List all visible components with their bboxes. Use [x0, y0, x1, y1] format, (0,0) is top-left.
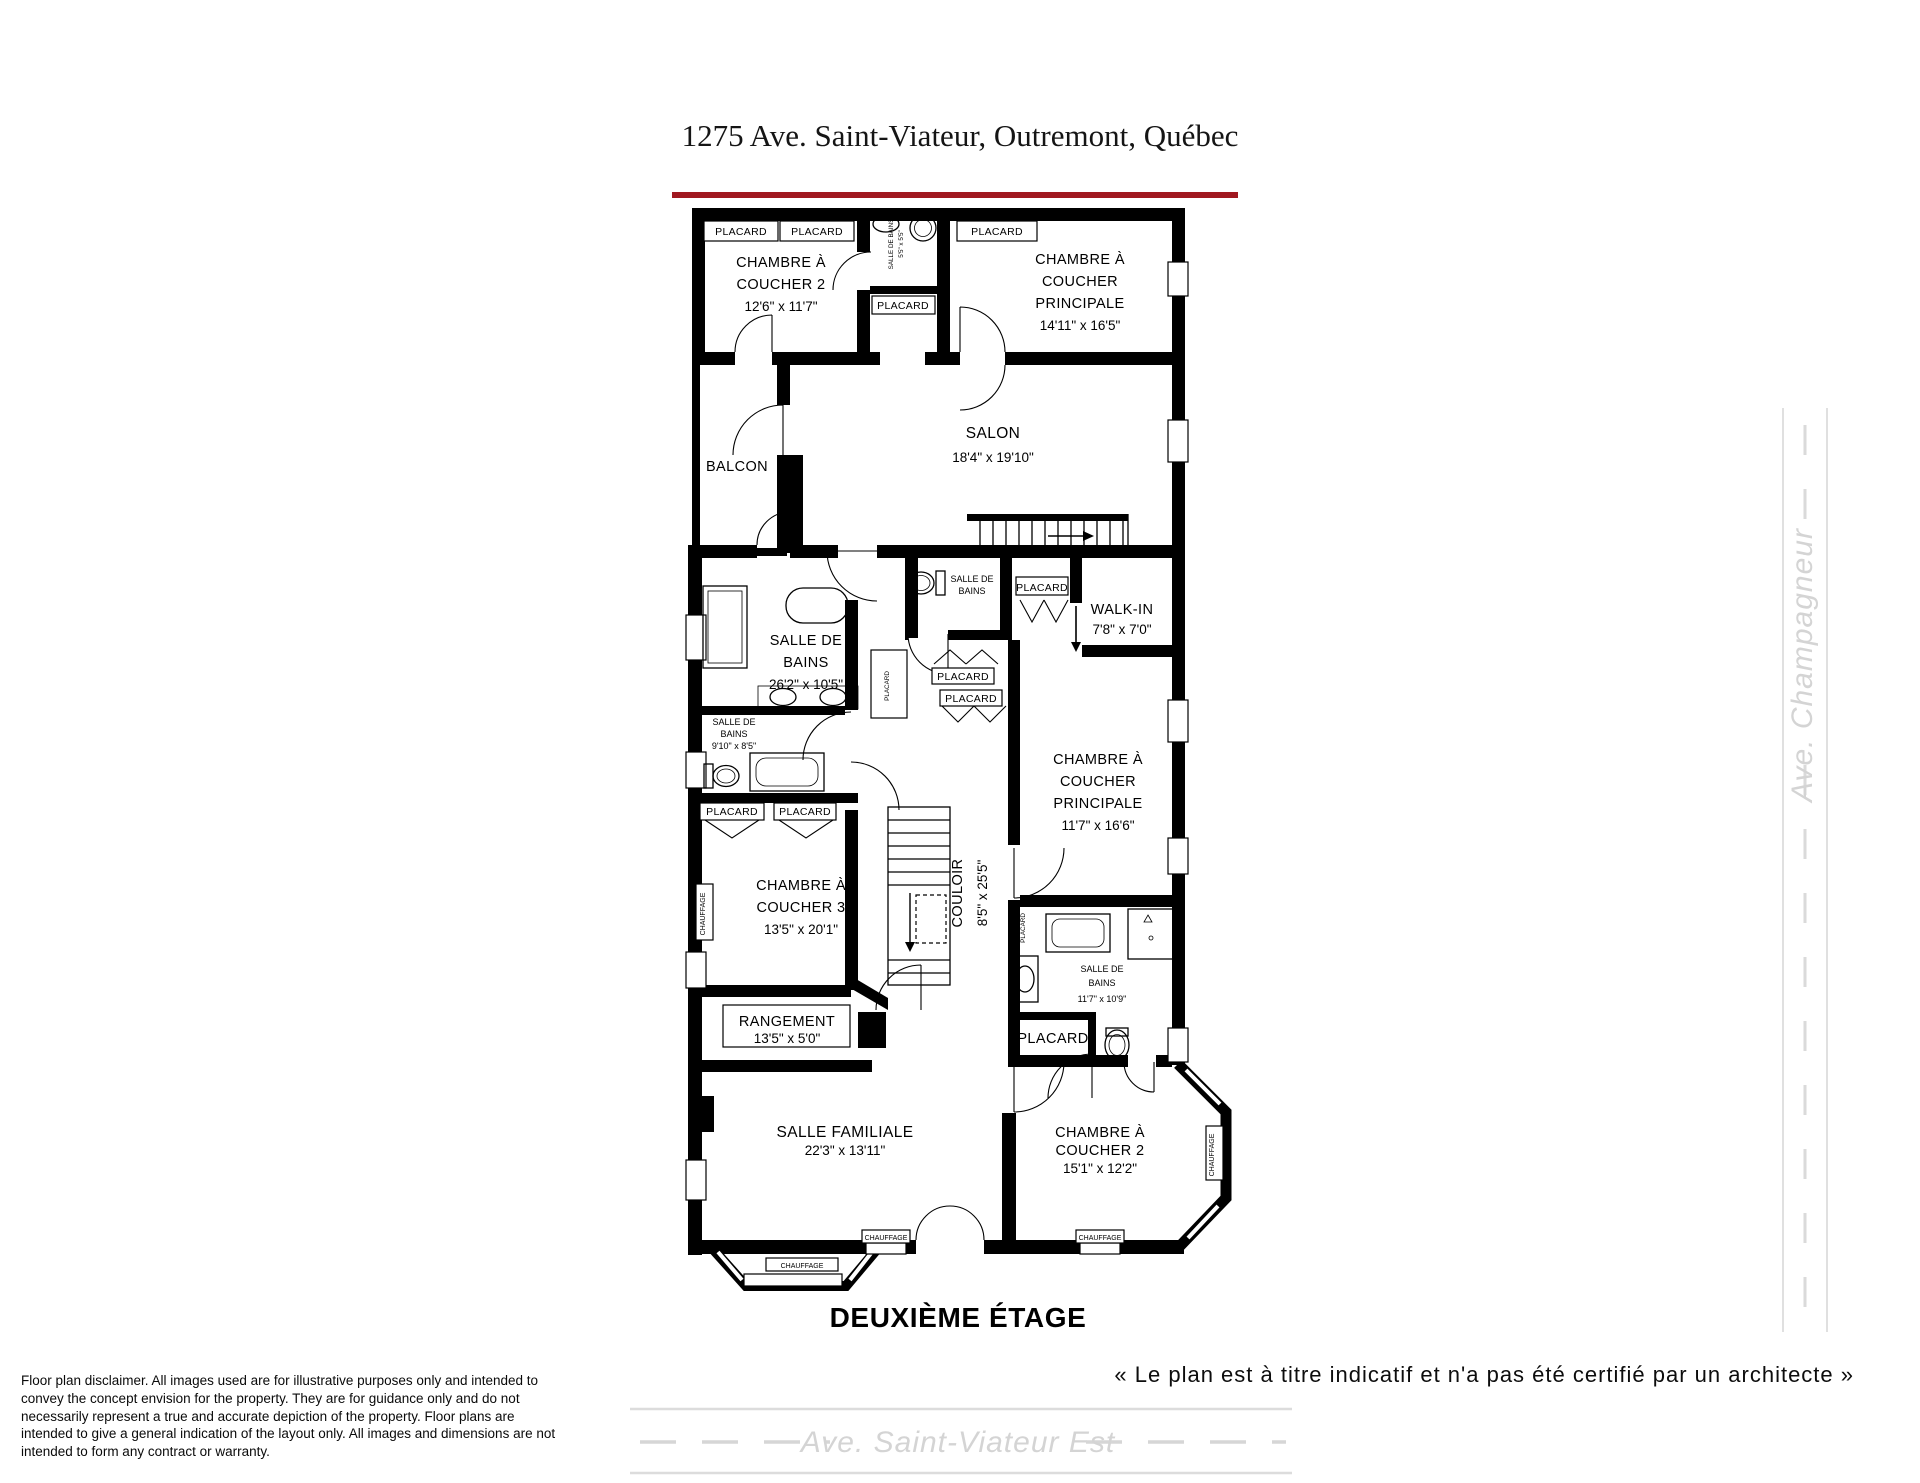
floor-plan-drawing: PLACARD PLACARD PLACARD PLACARD SALLE DE…	[0, 0, 1920, 1483]
room-label: SALLE DE	[950, 574, 993, 584]
door-swings	[733, 252, 1154, 1240]
room-dims: 12'6" x 11'7"	[744, 299, 817, 314]
room-label: COUCHER	[1042, 274, 1118, 290]
closet-label: PLACARD	[971, 226, 1023, 238]
stairs-down-arrow	[905, 942, 915, 952]
shower-icon	[1128, 909, 1176, 959]
room-dims: 9'10" x 8'5"	[712, 741, 756, 751]
heater-label: CHAUFFAGE	[865, 1235, 908, 1242]
floor-plan-page: 1275 Ave. Saint-Viateur, Outremont, Québ…	[0, 0, 1920, 1483]
floor-title: DEUXIÈME ÉTAGE	[830, 1302, 1087, 1333]
closet-label: PLACARD	[1017, 1031, 1088, 1047]
stairs-main	[888, 807, 950, 985]
room-label: CHAMBRE À	[756, 877, 846, 894]
room-label-walkin: WALK-IN	[1091, 602, 1154, 618]
room-dims: 13'5" x 20'1"	[764, 922, 838, 937]
room-label: CHAMBRE À	[736, 254, 826, 271]
closet-boxes	[696, 221, 1223, 1271]
room-label: BAINS	[720, 729, 747, 739]
room-label: CHAMBRE À	[1035, 251, 1125, 268]
room-dims: 15'1" x 12'2"	[1063, 1161, 1137, 1176]
exterior-walls	[688, 208, 1185, 1255]
room-label: PRINCIPALE	[1035, 296, 1124, 312]
interior-walls	[690, 221, 1172, 1240]
architect-quote: « Le plan est à titre indicatif et n'a p…	[1114, 1362, 1854, 1388]
closet-label: PLACARD	[884, 671, 891, 701]
room-label: BAINS	[1088, 978, 1115, 988]
room-label: SALLE DE	[712, 717, 755, 727]
room-dims-couloir: 8'5" x 25'5"	[975, 860, 990, 927]
room-dims: 11'7" x 10'9"	[1078, 994, 1127, 1004]
street-label-right: Ave. Champagneur	[1786, 528, 1819, 804]
stairs-salon	[967, 514, 1128, 545]
room-dims-rangement: 13'5" x 5'0"	[754, 1031, 821, 1046]
room-label: CHAMBRE À	[1055, 1124, 1145, 1141]
room-label: BAINS	[783, 655, 829, 671]
closet-label: PLACARD	[791, 226, 843, 238]
room-label: COUCHER 2	[1056, 1143, 1145, 1159]
room-label: SALLE DE	[1080, 964, 1123, 974]
heater-label: CHAUFFAGE	[781, 1263, 824, 1270]
street-label-bottom: Ave. Saint-Viateur Est	[799, 1426, 1116, 1459]
toilet-tank-icon	[936, 571, 945, 595]
room-label-rangement: RANGEMENT	[739, 1014, 835, 1030]
room-label-balcon: BALCON	[706, 459, 768, 475]
room-dims: 26'2" x 10'5"	[769, 677, 843, 692]
room-dims-walkin: 7'8" x 7'0"	[1092, 622, 1151, 637]
room-dims-bath-top: 5'5" x 5'5"	[898, 230, 905, 258]
walk-in-entry-arrow	[1071, 606, 1081, 652]
heater-label: CHAUFFAGE	[700, 892, 707, 935]
room-label: SALLE DE	[770, 633, 843, 649]
room-label-salon: SALON	[966, 425, 1021, 442]
closet-label: PLACARD	[1020, 913, 1027, 943]
shower-icon	[703, 586, 747, 668]
room-label-couloir: COULOIR	[950, 859, 966, 928]
room-label: PRINCIPALE	[1053, 796, 1142, 812]
disclaimer-text: Floor plan disclaimer. All images used a…	[21, 1372, 569, 1461]
heater-label: CHAUFFAGE	[1209, 1133, 1216, 1176]
bathtub-icon	[786, 588, 848, 623]
room-label: COUCHER 3	[757, 900, 846, 916]
room-label: CHAMBRE À	[1053, 751, 1143, 768]
room-label-famille: SALLE FAMILIALE	[777, 1124, 914, 1141]
street-watermark-right: Ave. Champagneur	[1783, 408, 1827, 1332]
closet-label: PLACARD	[877, 300, 929, 312]
room-label-bath-top: SALLE DE BAINS	[888, 219, 895, 270]
closet-label: PLACARD	[937, 671, 989, 683]
closet-label: PLACARD	[715, 226, 767, 238]
room-dims-salon: 18'4" x 19'10"	[952, 450, 1034, 465]
street-watermark-bottom: Ave. Saint-Viateur Est	[630, 1409, 1292, 1473]
room-dims: 11'7" x 16'6"	[1061, 818, 1134, 833]
closet-label: PLACARD	[1016, 582, 1068, 594]
bathtub-icon	[750, 753, 824, 791]
room-label: BAINS	[958, 586, 985, 596]
bathtub-icon	[1046, 914, 1110, 952]
room-label: COUCHER 2	[737, 277, 826, 293]
closet-label: PLACARD	[945, 693, 997, 705]
stairs-up-arrow	[1083, 531, 1094, 541]
room-dims: 14'11" x 16'5"	[1040, 318, 1121, 333]
closet-label: PLACARD	[706, 806, 758, 818]
closet-label: PLACARD	[779, 806, 831, 818]
room-label: COUCHER	[1060, 774, 1136, 790]
room-dims-famille: 22'3" x 13'11"	[805, 1143, 886, 1158]
heater-label: CHAUFFAGE	[1079, 1235, 1122, 1242]
